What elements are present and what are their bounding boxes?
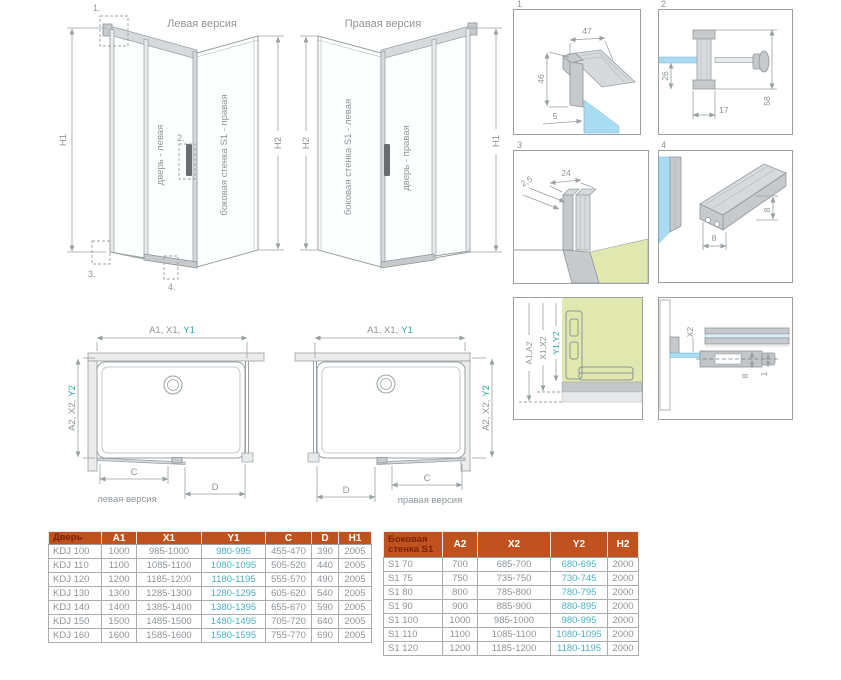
table-cell: 2005 — [339, 587, 372, 601]
door-table-header-x1: X1 — [137, 532, 202, 545]
table-cell: 1500 — [102, 615, 137, 629]
table-cell: 885-900 — [478, 600, 551, 614]
table-row: KDJ 1001000985-1000980-995455-4703902005 — [49, 545, 372, 559]
h1-label: H1 — [491, 135, 502, 147]
table-cell: 1380-1395 — [202, 601, 266, 615]
dim-17: 17 — [719, 105, 729, 115]
h1-dimension-left-view: H1 — [58, 28, 106, 252]
table-row: KDJ 16016001585-16001580-1595755-7706902… — [49, 629, 372, 643]
table-cell: 1000 — [102, 545, 137, 559]
dim-24: 24 — [561, 168, 571, 178]
table-row: S1 70700685-700680-6952000 — [384, 558, 639, 572]
table-cell: 700 — [443, 558, 478, 572]
table-cell: S1 90 — [384, 600, 443, 614]
h2-dimension-left-view: H2 — [258, 36, 285, 250]
table-cell: 1180-1195 — [202, 573, 266, 587]
table-cell: KDJ 120 — [49, 573, 102, 587]
table-cell: 1080-1095 — [551, 628, 608, 642]
table-cell: 980-995 — [202, 545, 266, 559]
door-table-header-row: Дверь A1 X1 Y1 C D H1 — [49, 532, 372, 545]
side-table-header-a2: A2 — [443, 532, 478, 558]
plan-left-door — [97, 458, 185, 465]
table-cell: 800 — [443, 586, 478, 600]
right-version-drawing: Правая версия H2 — [292, 0, 510, 300]
callout-1-label: 1. — [93, 3, 101, 13]
dim-x2: X2 — [685, 327, 695, 338]
table-row: KDJ 11011001085-11001080-1095505-5204402… — [49, 559, 372, 573]
door-table-header-y1: Y1 — [202, 532, 266, 545]
dim-47: 47 — [582, 26, 592, 36]
table-cell: 1185-1200 — [137, 573, 202, 587]
table-cell: 985-1000 — [478, 614, 551, 628]
table-cell: 1285-1300 — [137, 587, 202, 601]
callout-3-label: 3. — [88, 269, 96, 279]
table-cell: 540 — [312, 587, 339, 601]
table-row: S1 90900885-900880-8952000 — [384, 600, 639, 614]
detail-1-top-corner: 1 47 46 5 — [513, 0, 641, 136]
table-cell: 1385-1400 — [137, 601, 202, 615]
d-dim-label: D — [212, 482, 219, 493]
detail-4-number: 4 — [661, 140, 666, 150]
plan-right-tray — [317, 362, 465, 458]
table-cell: S1 80 — [384, 586, 443, 600]
callout-2-label: 2. — [177, 133, 185, 143]
table-row: KDJ 13013001285-13001280-1295605-6205402… — [49, 587, 372, 601]
table-cell: 1585-1600 — [137, 629, 202, 643]
h1-label: H1 — [58, 134, 69, 146]
table-cell: 730-745 — [551, 572, 608, 586]
table-cell: 605-620 — [266, 587, 312, 601]
table-cell: 1485-1500 — [137, 615, 202, 629]
table-row: S1 1001000985-1000980-9952000 — [384, 614, 639, 628]
table-row: S1 12012001185-12001180-11952000 — [384, 642, 639, 656]
table-cell: 2005 — [339, 601, 372, 615]
side-table-header-x2: X2 — [478, 532, 551, 558]
dim-8-width: 8 — [712, 233, 717, 243]
c-dim-label: C — [424, 473, 431, 484]
table-cell: 2000 — [608, 614, 639, 628]
table-cell: S1 110 — [384, 628, 443, 642]
table-cell: 1100 — [102, 559, 137, 573]
h2-label: H2 — [301, 137, 312, 149]
plan-right-version: A1, X1,Y1 A2, X2,Y2 D C правая версия — [288, 318, 512, 518]
table-cell: 1580-1595 — [202, 629, 266, 643]
table-cell: 980-995 — [551, 614, 608, 628]
table-cell: 1480-1495 — [202, 615, 266, 629]
table-cell: 590 — [312, 601, 339, 615]
table-cell: 780-795 — [551, 586, 608, 600]
table-cell: 2005 — [339, 545, 372, 559]
detail-6-top-section: X2 8 1 — [656, 293, 795, 423]
table-cell: 2000 — [608, 572, 639, 586]
side-table-header-h2: H2 — [608, 532, 639, 558]
door-handle — [172, 458, 182, 464]
table-cell: 785-800 — [478, 586, 551, 600]
table-cell: 685-700 — [478, 558, 551, 572]
plan-right-door — [377, 458, 465, 465]
technical-drawing-sheet: Левая версия H1 — [0, 0, 841, 680]
plan-right-dim-c: C — [392, 464, 462, 490]
drain-icon — [164, 376, 182, 394]
door-table-header-d: D — [312, 532, 339, 545]
table-row: KDJ 15015001485-15001480-1495705-7206402… — [49, 615, 372, 629]
dim-y1-y2: Y1,Y2 — [551, 331, 561, 354]
door-table-header-a1: A1 — [102, 532, 137, 545]
door-left-label: дверь - левая — [155, 125, 166, 186]
table-cell: 1085-1100 — [137, 559, 202, 573]
plan-left-version: A1, X1,Y1 A2, X2,Y2 C D левая версия — [45, 318, 290, 518]
table-cell: 490 — [312, 573, 339, 587]
dim-1: 1 — [759, 371, 769, 376]
table-cell: KDJ 130 — [49, 587, 102, 601]
door-handle — [377, 458, 387, 464]
h1-dimension-right-view: H1 — [470, 28, 503, 252]
detail-3-wall-profile: 3 24 2,5 — [513, 140, 650, 285]
table-cell: 2000 — [608, 600, 639, 614]
table-row: KDJ 14014001385-14001380-1395655-6705902… — [49, 601, 372, 615]
table-cell: 1200 — [443, 642, 478, 656]
plan-right-dim-side: A2, X2,Y2 — [472, 358, 492, 458]
table-row: S1 75750735-750730-7452000 — [384, 572, 639, 586]
plan-right-caption: правая версия — [398, 495, 462, 506]
right-version-title: Правая версия — [345, 18, 422, 30]
table-cell: 735-750 — [478, 572, 551, 586]
dim-26: 26 — [660, 71, 670, 81]
table-row: S1 80800785-800780-7952000 — [384, 586, 639, 600]
detail-4-seal-profile: 4 8 8 — [656, 140, 795, 285]
drain-icon — [377, 375, 395, 393]
table-cell: 985-1000 — [137, 545, 202, 559]
table-cell: 705-720 — [266, 615, 312, 629]
door-right-label: дверь - правая — [401, 125, 412, 191]
detail-3-number: 3 — [517, 140, 522, 150]
plan-left-caption: левая версия — [97, 494, 157, 505]
side-table-header-row: Боковая стенка S1 A2 X2 Y2 H2 — [384, 532, 639, 558]
detail-5-wall-section: A1,A2 X1,X2 Y1,Y2 — [513, 293, 645, 423]
d-dim-label: D — [343, 485, 350, 496]
table-cell: 2000 — [608, 558, 639, 572]
table-cell: 1280-1295 — [202, 587, 266, 601]
table-cell: 1000 — [443, 614, 478, 628]
door-handle — [186, 144, 192, 176]
table-cell: 680-695 — [551, 558, 608, 572]
table-cell: 1300 — [102, 587, 137, 601]
table-cell: KDJ 150 — [49, 615, 102, 629]
table-cell: 900 — [443, 600, 478, 614]
table-cell: 505-520 — [266, 559, 312, 573]
table-cell: 1080-1095 — [202, 559, 266, 573]
table-cell: S1 100 — [384, 614, 443, 628]
side-table-header-y2: Y2 — [551, 532, 608, 558]
dim-x1-x2: X1,X2 — [538, 336, 548, 359]
table-cell: KDJ 140 — [49, 601, 102, 615]
table-cell: 655-670 — [266, 601, 312, 615]
table-cell: 455-470 — [266, 545, 312, 559]
table-cell: 1185-1200 — [478, 642, 551, 656]
table-cell: 2005 — [339, 559, 372, 573]
plan-left-tray — [97, 362, 245, 458]
table-row: S1 11011001085-11001080-10952000 — [384, 628, 639, 642]
plan-left-side-dim-label: A2, X2,Y2 — [67, 385, 78, 431]
h2-label: H2 — [273, 137, 284, 149]
door-dimensions-table: Дверь A1 X1 Y1 C D H1 KDJ 1001000985-100… — [48, 531, 372, 643]
dim-58: 58 — [762, 96, 772, 106]
left-version-drawing: Левая версия H1 — [40, 0, 292, 300]
table-cell: 1100 — [443, 628, 478, 642]
callout-4-label: 4. — [168, 282, 176, 292]
detail-1-number: 1 — [517, 0, 522, 9]
table-cell: 390 — [312, 545, 339, 559]
table-cell: 440 — [312, 559, 339, 573]
table-cell: 2005 — [339, 615, 372, 629]
table-cell: 755-770 — [266, 629, 312, 643]
detail-5-drawing — [562, 298, 642, 402]
plan-right-dim-d: D — [317, 466, 375, 502]
table-cell: S1 120 — [384, 642, 443, 656]
dim-46: 46 — [536, 74, 546, 84]
right-version-door — [381, 23, 477, 268]
dim-5: 5 — [553, 111, 558, 121]
plan-right-side-dim-label: A2, X2,Y2 — [481, 385, 492, 431]
table-row: KDJ 12012001185-12001180-1195555-5704902… — [49, 573, 372, 587]
left-version-door — [103, 24, 197, 268]
table-cell: S1 70 — [384, 558, 443, 572]
table-cell: 2000 — [608, 628, 639, 642]
callout-3: 3. — [88, 241, 110, 279]
table-cell: 1200 — [102, 573, 137, 587]
side-wall-right-label: боковая стенка S1 - правая — [219, 94, 230, 215]
dim-8: 8 — [740, 373, 750, 378]
h2-dimension-right-view: H2 — [299, 36, 318, 250]
plan-right-top-dim-label: A1, X1,Y1 — [367, 325, 413, 336]
table-cell: KDJ 160 — [49, 629, 102, 643]
door-table-header-name: Дверь — [49, 532, 102, 545]
table-cell: 2000 — [608, 642, 639, 656]
table-cell: 640 — [312, 615, 339, 629]
table-cell: 1400 — [102, 601, 137, 615]
side-table-header-name: Боковая стенка S1 — [384, 532, 443, 558]
plan-left-dim-c: C — [100, 464, 168, 484]
table-cell: 1600 — [102, 629, 137, 643]
table-cell: 690 — [312, 629, 339, 643]
detail-2-wall-support: 2 26 17 58 — [656, 0, 795, 136]
side-wall-dimensions-table: Боковая стенка S1 A2 X2 Y2 H2 S1 7070068… — [383, 531, 639, 656]
table-cell: S1 75 — [384, 572, 443, 586]
table-cell: 880-895 — [551, 600, 608, 614]
table-cell: 750 — [443, 572, 478, 586]
door-table-header-c: C — [266, 532, 312, 545]
table-cell: 2005 — [339, 629, 372, 643]
table-cell: KDJ 100 — [49, 545, 102, 559]
plan-left-dim-d: D — [185, 464, 245, 499]
left-version-title: Левая версия — [167, 18, 237, 30]
detail-2-number: 2 — [661, 0, 666, 9]
table-cell: 2005 — [339, 573, 372, 587]
dim-a1-a2: A1,A2 — [524, 341, 534, 364]
plan-left-top-dim-label: A1, X1,Y1 — [149, 325, 195, 336]
table-cell: 1180-1195 — [551, 642, 608, 656]
table-cell: 2000 — [608, 586, 639, 600]
table-cell: 555-570 — [266, 573, 312, 587]
c-dim-label: C — [131, 467, 138, 478]
table-cell: KDJ 110 — [49, 559, 102, 573]
door-table-header-h1: H1 — [339, 532, 372, 545]
table-cell: 1085-1100 — [478, 628, 551, 642]
dim-8-height: 8 — [762, 207, 772, 212]
side-wall-left-label: боковая стенка S1 - левая — [343, 99, 354, 215]
door-handle — [384, 144, 390, 176]
